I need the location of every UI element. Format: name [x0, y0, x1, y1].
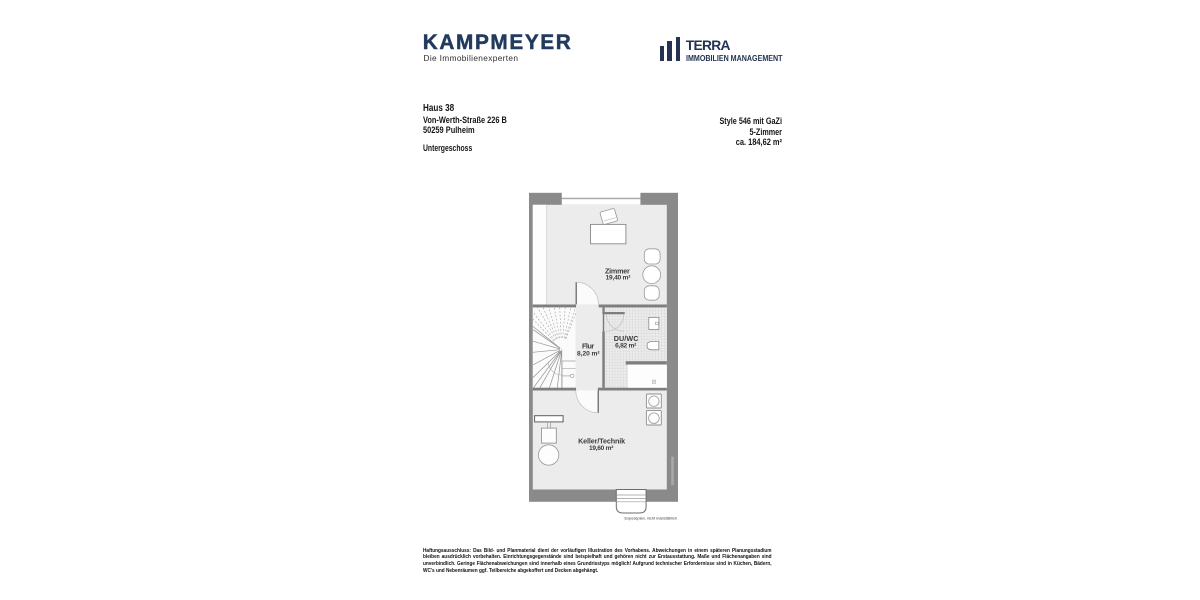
svg-text:19,60 m²: 19,60 m² — [589, 445, 614, 452]
svg-text:19,40 m²: 19,40 m² — [606, 275, 632, 282]
svg-text:Flur: Flur — [582, 341, 594, 350]
svg-text:8,20 m²: 8,20 m² — [577, 350, 600, 357]
svg-text:Exposéplan, nicht maßstäblich: Exposéplan, nicht maßstäblich — [625, 516, 678, 521]
svg-text:6,82 m²: 6,82 m² — [615, 343, 637, 350]
